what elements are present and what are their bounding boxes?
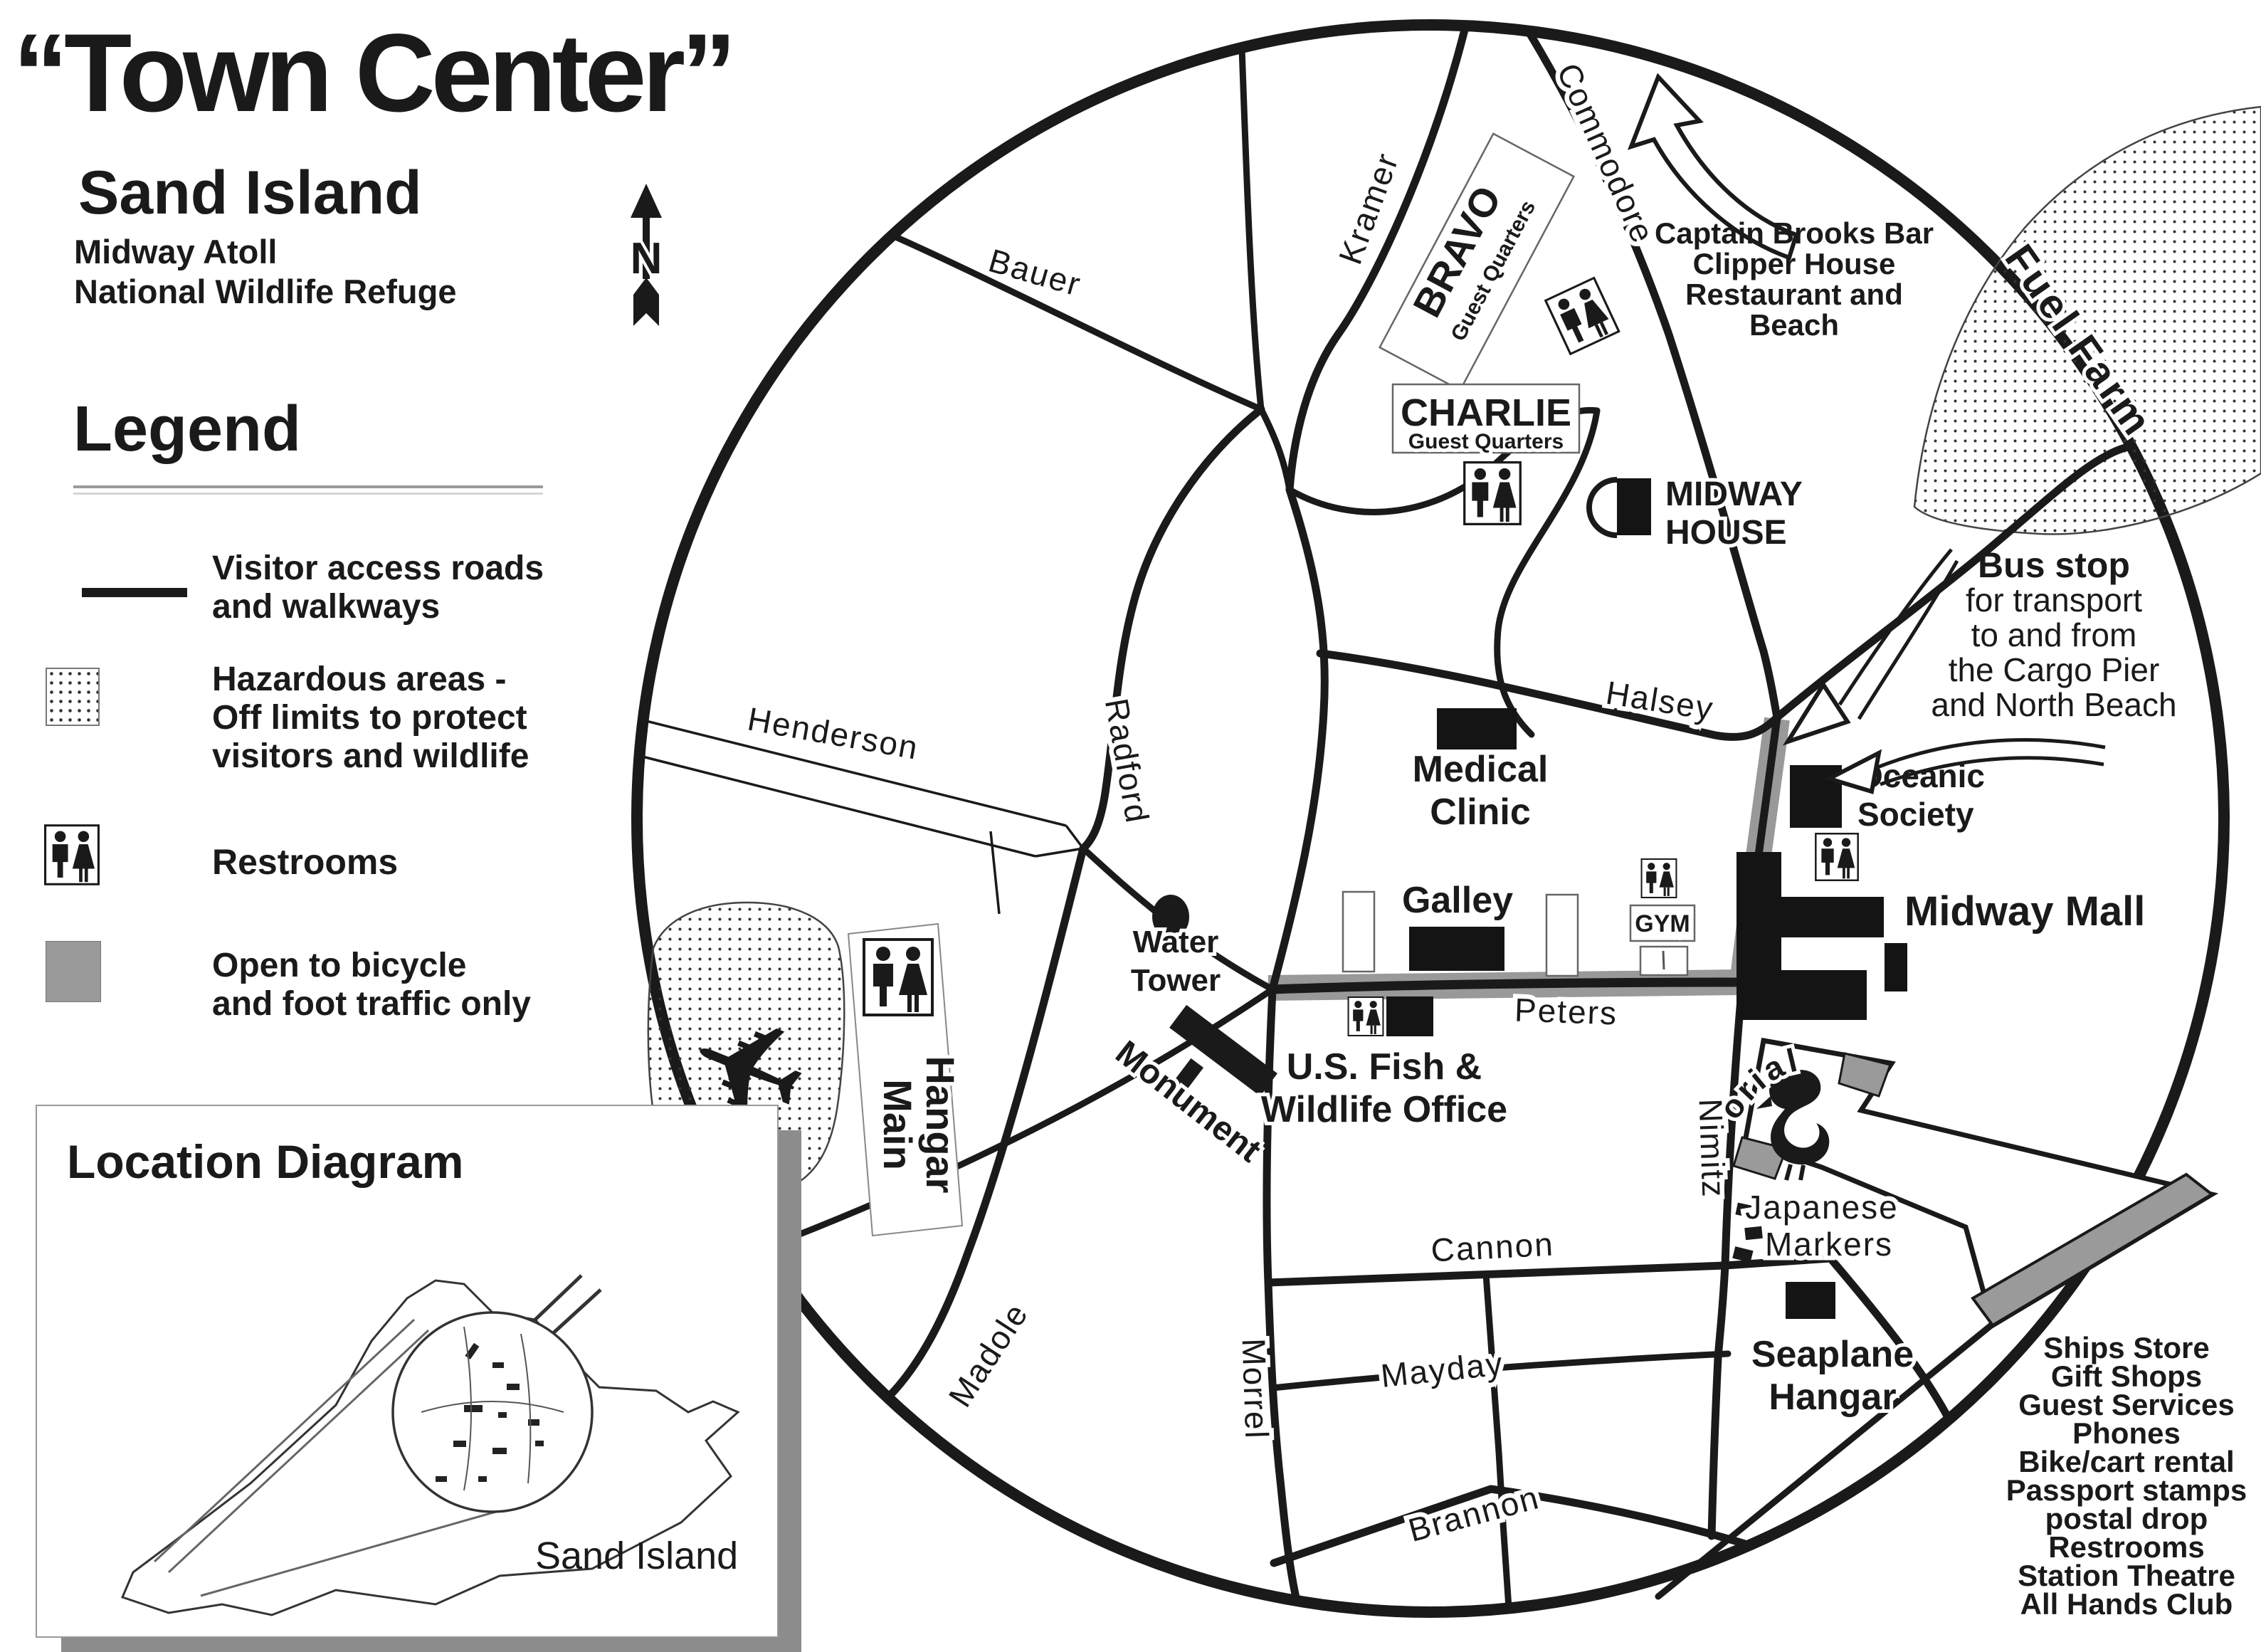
service-item: Restrooms bbox=[1970, 1533, 2261, 1562]
label-seaplane-hangar-2: Hangar bbox=[1769, 1377, 1896, 1418]
label-japanese-markers-1: Japanese bbox=[1745, 1189, 1899, 1226]
page-subtitle: Sand Island bbox=[78, 158, 422, 228]
service-item: Bike/cart rental bbox=[1970, 1448, 2261, 1476]
label-charlie-sub: Guest Quarters bbox=[1408, 430, 1564, 453]
captain-line-4: Beach bbox=[1641, 310, 1947, 340]
service-item: All Hands Club bbox=[1970, 1590, 2261, 1619]
north-arrow-icon: N bbox=[631, 184, 663, 326]
legend-visitor-line-1: Visitor access roads bbox=[212, 549, 544, 588]
label-midway-mall: Midway Mall bbox=[1904, 888, 2145, 935]
service-item: Passport stamps bbox=[1970, 1476, 2261, 1505]
building-midway-mall-north bbox=[1781, 897, 1884, 937]
label-water-tower-1: Water bbox=[1133, 925, 1219, 959]
legend-heading: Legend bbox=[73, 393, 301, 466]
midway-house-tank bbox=[1589, 480, 1617, 535]
building-galley bbox=[1409, 927, 1504, 971]
legend-visitor-roads: Visitor access roads and walkways bbox=[212, 549, 544, 626]
building-midway-mall-west bbox=[1736, 852, 1781, 1020]
captain-line-3: Restaurant and bbox=[1641, 279, 1947, 310]
building-outline-west-of-galley bbox=[1343, 892, 1374, 972]
legend-hazard: Hazardous areas - Off limits to protect … bbox=[212, 661, 529, 776]
label-seaplane-hangar-1: Seaplane bbox=[1751, 1334, 1914, 1375]
island-label: Sand Island bbox=[535, 1535, 738, 1577]
label-road-morrel: Morrel bbox=[1235, 1337, 1276, 1440]
bus-line-5: and North Beach bbox=[1897, 688, 2210, 722]
north-letter: N bbox=[631, 234, 663, 283]
building-midway-mall-south bbox=[1781, 970, 1867, 1020]
captain-line-1: Captain Brooks Bar bbox=[1641, 218, 1947, 248]
service-item: Phones bbox=[1970, 1419, 2261, 1448]
restroom-mall bbox=[1815, 833, 1857, 880]
service-item: postal drop bbox=[1970, 1505, 2261, 1533]
building-seaplane-hangar bbox=[1786, 1282, 1835, 1319]
map-page: ✈ BRAVO Guest Quarters CHARLIE Guest Qua… bbox=[0, 0, 2261, 1652]
legend-bike: Open to bicycle and foot traffic only bbox=[212, 947, 531, 1024]
service-item: Station Theatre bbox=[1970, 1562, 2261, 1590]
restroom-usfw bbox=[1349, 997, 1384, 1036]
legend-hazard-line-3: visitors and wildlife bbox=[212, 737, 529, 776]
subtitle-line-1: Midway Atoll bbox=[74, 232, 457, 272]
legend-hazard-line-1: Hazardous areas - bbox=[212, 661, 529, 699]
legend-bike-swatch bbox=[46, 941, 101, 1002]
legend-restrooms-label: Restrooms bbox=[212, 841, 398, 883]
location-diagram-map: Sand Island bbox=[37, 1106, 777, 1636]
captain-brooks-note: Captain Brooks Bar Clipper House Restaur… bbox=[1641, 218, 1947, 340]
bus-line-4: the Cargo Pier bbox=[1897, 653, 2210, 688]
gym-annex-divider bbox=[1663, 951, 1664, 969]
legend-rule bbox=[73, 485, 543, 495]
mall-services-list: Ships Store Gift Shops Guest Services Ph… bbox=[1970, 1334, 2261, 1619]
legend-hazard-swatch bbox=[46, 668, 100, 726]
bus-line-2: for transport bbox=[1897, 583, 2210, 618]
label-medical-clinic-2: Clinic bbox=[1430, 791, 1531, 833]
legend-bike-line-1: Open to bicycle bbox=[212, 947, 531, 985]
label-charlie: CHARLIE bbox=[1401, 391, 1571, 434]
label-hangar-word: Hangar bbox=[918, 1056, 963, 1194]
captain-line-2: Clipper House bbox=[1641, 248, 1947, 279]
label-japanese-markers-2: Markers bbox=[1765, 1226, 1893, 1263]
service-item: Ships Store bbox=[1970, 1334, 2261, 1362]
restroom-charlie bbox=[1465, 463, 1521, 525]
bus-line-1: Bus stop bbox=[1897, 548, 2210, 583]
location-diagram-panel: Location Diagram Sand Island bbox=[36, 1105, 779, 1638]
page-title: “Town Center” bbox=[13, 10, 732, 137]
building-medical-clinic bbox=[1437, 708, 1517, 749]
bus-stop-note: Bus stop for transport to and from the C… bbox=[1897, 548, 2210, 722]
service-item: Gift Shops bbox=[1970, 1362, 2261, 1391]
restroom-main-hangar bbox=[864, 940, 932, 1015]
label-midway-house-2: HOUSE bbox=[1665, 514, 1787, 552]
restroom-gym bbox=[1642, 859, 1677, 898]
label-oceanic-society-2: Society bbox=[1857, 796, 1974, 833]
legend-restroom-swatch bbox=[44, 822, 100, 891]
service-item: Guest Services bbox=[1970, 1391, 2261, 1419]
page-subtitle-lines: Midway Atoll National Wildlife Refuge bbox=[74, 232, 457, 312]
label-medical-clinic-1: Medical bbox=[1413, 749, 1549, 790]
legend-visitor-line-2: and walkways bbox=[212, 588, 544, 626]
label-midway-house-1: MIDWAY bbox=[1665, 475, 1803, 513]
label-usfw-1: U.S. Fish & bbox=[1287, 1046, 1482, 1088]
label-gym: GYM bbox=[1635, 910, 1690, 937]
building-midway-mall-annex bbox=[1885, 943, 1907, 991]
building-usfw-office bbox=[1386, 996, 1433, 1036]
label-usfw-2: Wildlife Office bbox=[1261, 1089, 1507, 1130]
building-outline-east-of-galley bbox=[1546, 895, 1578, 976]
label-water-tower-2: Tower bbox=[1131, 963, 1221, 998]
building-midway-house bbox=[1617, 478, 1651, 535]
legend-bike-line-2: and foot traffic only bbox=[212, 985, 531, 1024]
label-main-word: Main bbox=[875, 1079, 920, 1170]
legend-hazard-line-2: Off limits to protect bbox=[212, 699, 529, 737]
bus-line-3: to and from bbox=[1897, 618, 2210, 653]
legend-road-swatch bbox=[82, 588, 187, 597]
label-road-peters: Peters bbox=[1514, 991, 1618, 1031]
label-galley: Galley bbox=[1402, 880, 1513, 921]
label-road-cannon: Cannon bbox=[1430, 1226, 1555, 1269]
subtitle-line-2: National Wildlife Refuge bbox=[74, 272, 457, 312]
